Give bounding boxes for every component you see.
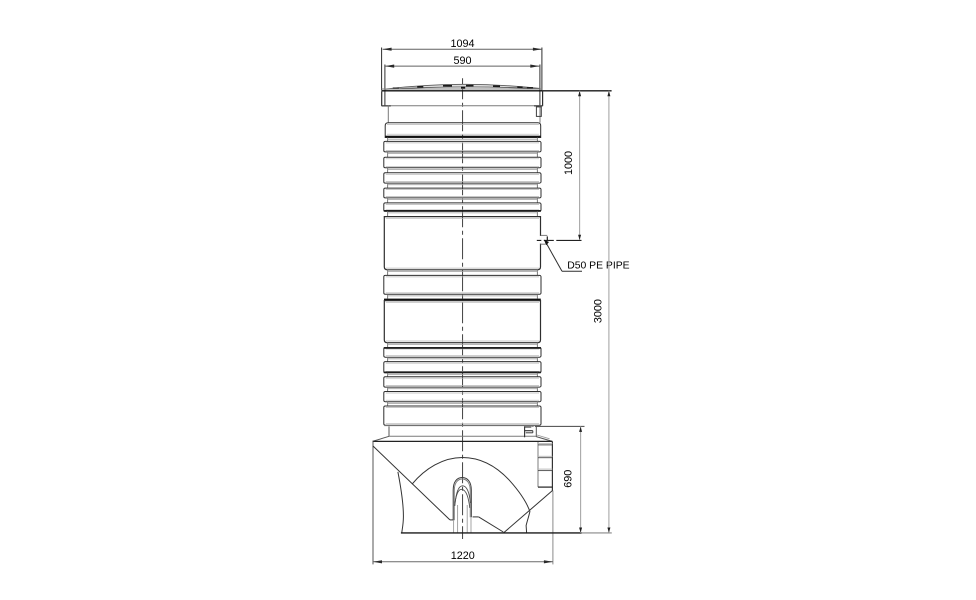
svg-text:590: 590 [453, 55, 471, 67]
svg-text:3000: 3000 [592, 299, 604, 323]
svg-text:1000: 1000 [563, 151, 575, 175]
svg-text:1094: 1094 [450, 38, 474, 50]
svg-text:D50 PE PIPE: D50 PE PIPE [567, 261, 629, 272]
svg-text:690: 690 [563, 470, 575, 488]
svg-text:1220: 1220 [451, 550, 475, 562]
